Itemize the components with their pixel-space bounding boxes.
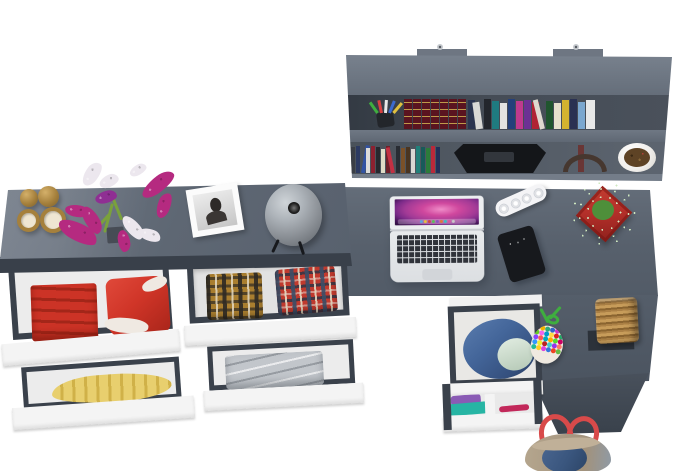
book-spine	[578, 102, 585, 129]
flower-bouquet	[55, 165, 180, 260]
laptop[interactable]	[390, 196, 485, 283]
shelf-lower-row	[346, 142, 672, 174]
drawer-unit-side-left	[442, 384, 452, 430]
dock-app-icon	[431, 220, 434, 223]
book-spine	[426, 148, 430, 173]
pencil-cup-body	[376, 111, 395, 128]
denim-clothes-pile	[462, 318, 536, 380]
encyclopedia-volume	[422, 99, 430, 129]
encyclopedia-volume	[413, 99, 421, 129]
laptop-trackpad[interactable]	[422, 269, 452, 280]
laptop-display-wallpaper	[395, 199, 479, 226]
shelf-divider-edge	[346, 130, 672, 142]
book-spine	[376, 147, 380, 173]
drawer-interior	[454, 310, 536, 381]
folded-red-towels	[30, 283, 98, 341]
magenta-flower-spray	[153, 191, 174, 220]
white-flower-spray	[128, 161, 149, 179]
encyclopedia-volume	[449, 99, 457, 129]
planter-bowl	[618, 143, 656, 172]
drawer-interior	[212, 344, 350, 385]
book-spine	[586, 100, 595, 129]
book-spine	[411, 149, 415, 173]
book-spine	[508, 99, 515, 129]
drawer-divider	[485, 394, 496, 416]
book-spine	[524, 100, 531, 129]
pen-icon	[368, 101, 378, 113]
laptop-keyboard[interactable]	[397, 235, 477, 264]
power-socket	[509, 196, 522, 209]
dock-app-icon	[435, 220, 438, 223]
mount-screw-icon	[437, 44, 443, 50]
shelf-upper-row	[346, 95, 672, 130]
laptop-screen-lid	[390, 196, 484, 230]
encyclopedia-volume	[404, 99, 412, 129]
book-spine	[416, 146, 420, 173]
pencil-cup	[368, 95, 402, 129]
tote-body	[525, 434, 611, 471]
book-spine	[500, 103, 507, 129]
drawer-sheets[interactable]	[207, 339, 355, 391]
book-spine	[436, 147, 440, 173]
book-spine	[351, 147, 355, 173]
photo-frame	[186, 182, 245, 238]
black-case	[454, 144, 546, 173]
book-spine	[492, 101, 499, 129]
encyclopedia-volume	[440, 99, 448, 129]
book-spine	[401, 148, 405, 173]
power-socket	[532, 186, 545, 199]
red-garment	[105, 275, 171, 337]
white-flower-spray	[138, 226, 163, 245]
wall-shelf	[346, 55, 672, 181]
plant-center	[592, 200, 614, 220]
dock-app-icon	[419, 220, 422, 223]
book-spine	[516, 101, 523, 129]
book-spine	[546, 101, 553, 129]
shelf-top-panel	[346, 55, 672, 95]
book-spine	[371, 146, 375, 173]
garment-white-trim	[140, 274, 169, 295]
encyclopedia-set	[404, 99, 466, 129]
dock-app-icon	[423, 220, 426, 223]
white-flower-spray	[97, 171, 120, 190]
handbag-handle	[563, 154, 607, 172]
dock-app-icon	[451, 220, 454, 223]
tote-fold	[532, 436, 601, 453]
book-spine	[396, 146, 400, 173]
plaid-shirt-red	[274, 265, 338, 316]
book-spine	[406, 147, 410, 173]
mount-screw-icon	[573, 44, 579, 50]
dock-app-icon	[439, 220, 442, 223]
encyclopedia-volume	[458, 99, 466, 129]
book-row-upper	[468, 97, 595, 129]
book-spine	[421, 147, 425, 173]
plaid-shirt-brown	[206, 272, 264, 320]
power-socket	[497, 202, 510, 215]
pens	[370, 97, 400, 113]
furniture-render-scene	[0, 0, 700, 471]
portrait-photo	[192, 189, 237, 231]
laptop-keyboard-deck	[390, 231, 484, 283]
laptop-dock	[398, 219, 476, 225]
tote-bag	[523, 414, 615, 471]
portrait-shoulders	[205, 209, 227, 226]
folded-grey-sheets	[225, 351, 325, 390]
power-socket	[520, 191, 533, 204]
red-handbag	[549, 145, 613, 172]
book-spine	[570, 99, 577, 129]
lamp-top-opening	[288, 202, 300, 214]
book-spine	[562, 100, 569, 129]
dock-app-icon	[443, 220, 446, 223]
book-spine	[381, 149, 385, 173]
folded-pink-cloth	[499, 404, 529, 413]
planter-soil	[624, 148, 650, 167]
potted-plant	[558, 174, 646, 252]
candle-holder	[20, 189, 38, 207]
black-case-sheen	[484, 152, 514, 162]
book-spine	[431, 146, 435, 173]
pen-icon	[384, 100, 388, 113]
bead	[555, 349, 561, 355]
book-spine	[356, 146, 360, 173]
green-cord-knot	[545, 313, 560, 325]
book-spine	[554, 103, 561, 129]
dock-app-icon	[427, 220, 430, 223]
wicker-basket	[595, 297, 639, 344]
encyclopedia-volume	[431, 99, 439, 129]
book-spine	[366, 148, 370, 173]
candle-in-holder	[17, 209, 40, 232]
table-lamp-shade	[265, 184, 322, 246]
dock-app-icon	[447, 220, 450, 223]
bead-cluster	[527, 323, 566, 367]
book-row-lower	[351, 144, 441, 173]
book-spine	[484, 99, 491, 129]
